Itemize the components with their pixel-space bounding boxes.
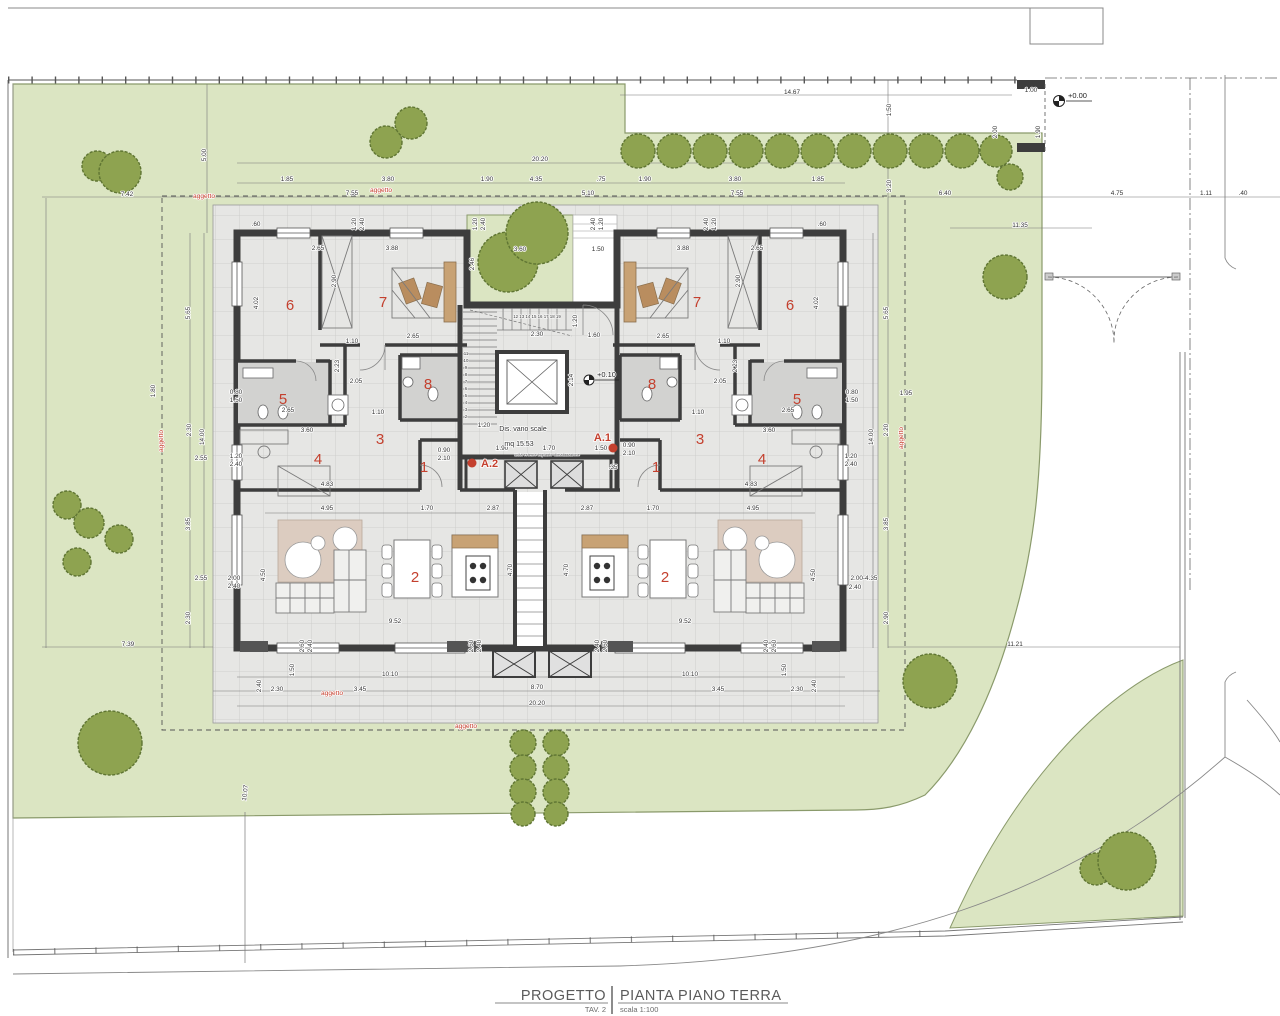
dimension-label: 8.70 — [531, 684, 544, 691]
tree — [63, 548, 91, 576]
dimension-label: 2.30 — [791, 686, 804, 693]
level-ground-text: +0.00 — [1068, 91, 1087, 100]
window — [770, 228, 803, 238]
dimension-label: 1.20 — [711, 217, 718, 230]
dimension-label: 3.80 — [729, 176, 742, 183]
room-number: 8 — [648, 376, 656, 393]
hedge-bush — [801, 134, 835, 168]
room-number: 6 — [286, 297, 294, 314]
dimension-label: 1.20 — [230, 453, 243, 460]
sink-counter — [807, 368, 837, 378]
dimension-label: 14.00 — [868, 429, 875, 445]
dimension-label: 2.46 — [469, 257, 476, 270]
dimension-label: 2.20 — [883, 423, 890, 436]
sink — [667, 377, 677, 387]
dimension-label: 2.40 — [845, 461, 858, 468]
dimension-label: 5.00 — [201, 148, 208, 161]
room-number: 5 — [793, 391, 801, 408]
dimension-label: 2.65 — [657, 333, 670, 340]
dimension-label: 2.55 — [195, 575, 208, 582]
dimension-label: 1.20 — [845, 453, 858, 460]
dimension-label: 3.80 — [382, 176, 395, 183]
dimension-label: 2.30 — [531, 331, 544, 338]
dimension-label: 4.70 — [507, 563, 514, 576]
corner-curb-far2 — [1247, 700, 1280, 742]
hedge-bush — [543, 730, 569, 756]
dimension-label: 1.10 — [718, 338, 731, 345]
dimension-label: 2.30 — [186, 423, 193, 436]
toilet — [258, 405, 268, 419]
dimension-label: 7.55 — [731, 190, 744, 197]
dimension-label: 1.11 — [1200, 190, 1212, 197]
dimension-label: 1.70 — [421, 505, 434, 512]
dimension-label: 4.75 — [1111, 190, 1124, 197]
room-number: 3 — [376, 431, 384, 448]
dimension-label: 10.10 — [682, 671, 698, 678]
dimension-label: 1.10 — [692, 409, 705, 416]
dimension-label: 2.05 — [714, 378, 727, 385]
dimension-label: 2.60 — [771, 639, 778, 652]
dimension-label: 3.60 — [763, 427, 776, 434]
dimension-label: 1.70 — [647, 505, 660, 512]
aggetto-label: aggetto — [193, 193, 215, 200]
central-shaft — [517, 492, 543, 646]
sheet-label: TAV. 2 — [585, 1005, 606, 1014]
dimension-label: 7.39 — [122, 641, 135, 648]
level-marker-ground: +0.00 — [1054, 91, 1093, 107]
dimension-label: 1.85 — [281, 176, 294, 183]
dimension-label: 2.40 — [256, 679, 263, 692]
dimension-label: 2.40 — [359, 217, 366, 230]
room-number: 8 — [424, 376, 432, 393]
dimension-label: 1.20 — [351, 217, 358, 230]
dimension-label: 1.50 — [886, 103, 893, 116]
sink-top — [402, 357, 420, 369]
tree — [78, 711, 142, 775]
dimension-label: 2.90 — [735, 274, 742, 287]
dimension-label: 1.20 — [598, 217, 605, 230]
dimension-label: 2.60 — [299, 639, 306, 652]
entrance-dot-a2 — [468, 459, 477, 468]
window — [232, 262, 242, 306]
dimension-label: 7.55 — [346, 190, 359, 197]
dimension-label: 2.23 — [334, 359, 341, 372]
dimension-label: .60 — [818, 221, 827, 228]
dimension-label: 2.40 — [849, 584, 862, 591]
dimension-label: 4.35 — [530, 176, 543, 183]
dimension-label: 2.10 — [623, 450, 636, 457]
dimension-label: 0.80 — [230, 389, 243, 396]
hob — [590, 556, 614, 590]
toilet — [812, 405, 822, 419]
dimension-label: 2.90 — [331, 274, 338, 287]
dimension-label: 1.50 — [289, 663, 296, 676]
tree — [983, 255, 1027, 299]
dimension-label: 3.85 — [883, 517, 890, 530]
dimension-label: .35 — [609, 464, 618, 471]
hob — [466, 556, 490, 590]
window — [838, 515, 848, 585]
hedge-bush — [543, 779, 569, 805]
aggetto-label: aggetto — [370, 187, 392, 194]
dimension-label: 5.65 — [185, 306, 192, 319]
hedge-bush — [729, 134, 763, 168]
dimension-label: 2.65 — [282, 407, 295, 414]
hedge-bush — [511, 802, 535, 826]
tree — [105, 525, 133, 553]
hedge-bush — [543, 755, 569, 781]
dimension-label: 2.00 — [992, 125, 999, 138]
dimension-label: 2.40 — [228, 583, 241, 590]
dimension-label: 1.50 — [846, 397, 859, 404]
dimension-label: 2.65 — [407, 333, 420, 340]
room-number: 5 — [279, 391, 287, 408]
dimension-label: .75 — [597, 176, 606, 183]
dimension-label: 1.60 — [588, 332, 601, 339]
entrance-dot-a1 — [609, 444, 618, 453]
room-number: 4 — [314, 451, 322, 468]
dimension-label: 0.90 — [438, 447, 451, 454]
ac-units-note: unità esterne impianto climatizzazione — [514, 452, 580, 457]
hedge-bush — [945, 134, 979, 168]
dimension-label: 7.42 — [121, 191, 134, 198]
dimension-label: 14.67 — [784, 89, 800, 96]
dimension-label: 4.70 — [563, 563, 570, 576]
dimension-label: 3.60 — [514, 246, 527, 253]
hedge-bush — [873, 134, 907, 168]
hedge-bush — [510, 730, 536, 756]
room-number: 2 — [661, 569, 669, 586]
drawing-title: PIANTA PIANO TERRA — [620, 988, 782, 1004]
hedge-bush — [510, 755, 536, 781]
dimension-label: 2.60 — [468, 639, 475, 652]
dimension-label: 1.50 — [592, 246, 605, 253]
dimension-label: 2.10 — [438, 455, 451, 462]
sofa-chaise — [334, 550, 366, 612]
right-curb-lower — [1225, 672, 1236, 757]
dimension-label: 3.60 — [301, 427, 314, 434]
dimension-label: 2.00 — [228, 575, 241, 582]
dimension-label: 2.90 — [883, 611, 890, 624]
dimension-label: .60 — [252, 221, 261, 228]
site-plan-svg: 14.671.505.0020.201.853.801.904.35.751.9… — [0, 0, 1280, 1016]
dimension-label: 0.80 — [846, 389, 859, 396]
tree — [395, 107, 427, 139]
dimension-label: 9.52 — [389, 618, 402, 625]
entrance-label-a1: A.1 — [594, 432, 611, 444]
window — [838, 262, 848, 306]
window — [277, 228, 310, 238]
dimension-label: 1.00 — [1025, 87, 1038, 94]
neighbor-building-outline — [1030, 8, 1103, 44]
dimension-label: 4.50 — [260, 568, 267, 581]
dimension-label: 6.40 — [939, 190, 952, 197]
hedge-bush — [765, 134, 799, 168]
aggetto-label: aggetto — [321, 690, 343, 697]
aggetto-label: aggetto — [898, 427, 905, 449]
dimension-label: 2.65 — [312, 245, 325, 252]
gate-leaf-post-right — [1172, 273, 1180, 280]
dimension-label: 4.83 — [321, 481, 334, 488]
tree — [997, 164, 1023, 190]
hedge-bush — [837, 134, 871, 168]
stair-top-numbers: 12 13 14 15 16 17 18 19 — [513, 314, 561, 319]
dimension-label: 2.55 — [195, 455, 208, 462]
right-curb-upper — [1225, 75, 1236, 269]
bed-headboard — [624, 262, 636, 322]
dimension-label: 3.20 — [886, 179, 893, 192]
room-number: 1 — [652, 459, 660, 476]
gate-swing-arc-left — [1048, 277, 1114, 343]
dimension-label: 2.40 — [476, 639, 483, 652]
room-number: 3 — [696, 431, 704, 448]
sofa-chaise — [714, 550, 746, 612]
dimension-label: 2.40 — [703, 217, 710, 230]
hedge-bush — [621, 134, 655, 168]
dimension-label: 3.88 — [386, 245, 399, 252]
dimension-label: 2.14 — [568, 373, 575, 386]
dimension-label: 1.50 — [230, 397, 243, 404]
dimension-label: 1.90 — [481, 176, 494, 183]
dimension-label: .40 — [1239, 190, 1248, 197]
dimension-label: 1.85 — [812, 176, 825, 183]
dimension-label: 1.90 — [639, 176, 652, 183]
dimension-label: 3.45 — [354, 686, 367, 693]
dimension-label: 2.65 — [751, 245, 764, 252]
title-block: PROGETTO PIANTA PIANO TERRA TAV. 2 scala… — [495, 986, 788, 1014]
hedge-bush — [657, 134, 691, 168]
dimension-label: 1.50 — [595, 445, 608, 452]
dimension-label: 1.20 — [472, 217, 479, 230]
dimension-label: 3.85 — [185, 517, 192, 530]
dimension-label: 5.65 — [883, 306, 890, 319]
dimension-label: 1.10 — [372, 409, 385, 416]
dimension-label: 4.50 — [810, 568, 817, 581]
elevator — [497, 352, 567, 412]
dimension-label: 1.90 — [1035, 125, 1042, 138]
dimension-label: 4.83 — [745, 481, 758, 488]
room-number: 7 — [379, 294, 387, 311]
dimension-label: 4.95 — [747, 505, 760, 512]
dimension-label: 2.40 — [811, 679, 818, 692]
dimension-label: 9.52 — [679, 618, 692, 625]
room-number: 2 — [411, 569, 419, 586]
dimension-label: 11.21 — [1007, 641, 1023, 648]
dimension-label: 11.35 — [1012, 222, 1028, 229]
sink-counter — [243, 368, 273, 378]
sink-top — [660, 357, 678, 369]
dimension-label: 2.40 — [480, 217, 487, 230]
dimension-label: 2.40 — [763, 639, 770, 652]
bed-headboard — [444, 262, 456, 322]
stair-step-number: 10 — [464, 358, 469, 363]
drawing-sheet: 14.671.505.0020.201.853.801.904.35.751.9… — [0, 0, 1280, 1016]
corner-curb-far1 — [1225, 757, 1280, 795]
dimension-label: 20.20 — [532, 156, 548, 163]
hedge-bush — [510, 779, 536, 805]
dimension-label: 2.30 — [185, 611, 192, 624]
dimension-label: 2.60 — [602, 639, 609, 652]
sink — [403, 377, 413, 387]
dimension-label: 2.05 — [350, 378, 363, 385]
room-number: 6 — [786, 297, 794, 314]
entrance-label-a2: A.2 — [481, 458, 498, 470]
dimension-label: 2.40 — [594, 639, 601, 652]
window — [390, 228, 423, 238]
hedge-bush — [544, 802, 568, 826]
gate-pillar-bottom — [1017, 143, 1045, 152]
tree — [74, 508, 104, 538]
gate-leaf-post-left — [1045, 273, 1053, 280]
hedge-bush — [980, 135, 1012, 167]
stair-note-line1: Dis. vano scale — [499, 426, 547, 433]
dimension-label: 1.70 — [543, 445, 556, 452]
dimension-label: 3.45 — [712, 686, 725, 693]
dimension-label: 14.00 — [199, 429, 206, 445]
dimension-label: 1.20 — [478, 422, 491, 429]
gate-swing-arc-right — [1114, 277, 1178, 343]
dimension-label: 2.87 — [487, 505, 500, 512]
dimension-label: 1.10 — [346, 338, 359, 345]
tree — [506, 202, 568, 264]
dimension-label: 1.95 — [900, 390, 913, 397]
room-number: 4 — [758, 451, 766, 468]
dimension-label: 2.30 — [271, 686, 284, 693]
aggetto-label: aggetto — [158, 430, 165, 452]
hedge-bush — [693, 134, 727, 168]
dimension-label: 1.20 — [572, 314, 579, 327]
tree — [1098, 832, 1156, 890]
dimension-label: 4.95 — [321, 505, 334, 512]
dimension-label: 2.23 — [732, 359, 739, 372]
dimension-label: 10.10 — [382, 671, 398, 678]
tree — [903, 654, 957, 708]
dimension-label: 5.10 — [582, 190, 595, 197]
dimension-label: 3.88 — [677, 245, 690, 252]
dimension-label: 2.65 — [782, 407, 795, 414]
project-label: PROGETTO — [521, 988, 606, 1004]
stair-note-line2: mq 15.53 — [504, 441, 533, 448]
dimension-label: 2.40 — [230, 461, 243, 468]
tree — [99, 151, 141, 193]
dimension-label: 2.87 — [581, 505, 594, 512]
aggetto-label: aggetto — [455, 723, 477, 730]
room-number: 7 — [693, 294, 701, 311]
level-entry-text: +0.10 — [597, 370, 616, 379]
room-number: 1 — [420, 459, 428, 476]
window — [657, 228, 690, 238]
scale-label: scala 1:100 — [620, 1005, 658, 1014]
dimension-label: 1.50 — [781, 663, 788, 676]
dimension-label: 4.02 — [253, 296, 260, 309]
dimension-label: 0.90 — [623, 442, 636, 449]
dimension-label: 1.80 — [150, 384, 157, 397]
stair-step-number: 11 — [464, 351, 469, 356]
dimension-label: 20.20 — [529, 700, 545, 707]
dimension-label: 2.40 — [307, 639, 314, 652]
hedge-bush — [909, 134, 943, 168]
dimension-label: 4.02 — [813, 296, 820, 309]
dimension-label: 2.00-4.35 — [850, 575, 877, 582]
dimension-label: 2.40 — [590, 217, 597, 230]
